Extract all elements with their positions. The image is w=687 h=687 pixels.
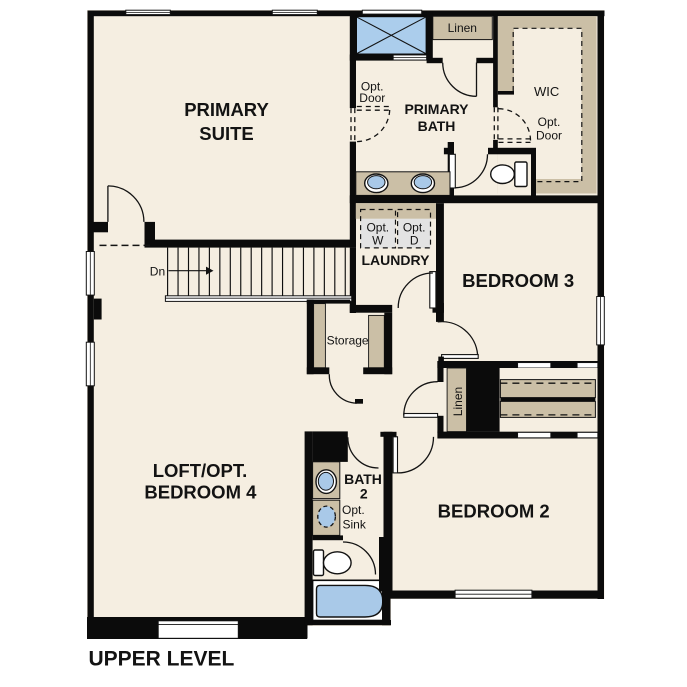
svg-text:Opt.: Opt. (342, 503, 365, 517)
svg-text:Dn: Dn (150, 265, 165, 279)
svg-text:SUITE: SUITE (199, 123, 253, 144)
svg-text:Door: Door (359, 91, 385, 105)
svg-text:WIC: WIC (534, 84, 559, 99)
svg-text:2: 2 (360, 486, 368, 502)
svg-text:LAUNDRY: LAUNDRY (362, 252, 431, 268)
svg-text:W: W (372, 233, 384, 247)
svg-text:Door: Door (536, 129, 562, 143)
svg-text:Storage: Storage (327, 334, 369, 348)
svg-text:Sink: Sink (343, 518, 367, 532)
svg-text:BATH: BATH (418, 118, 456, 134)
svg-text:Opt.: Opt. (366, 220, 389, 234)
svg-text:BEDROOM 3: BEDROOM 3 (462, 270, 574, 291)
svg-text:LOFT/OPT.: LOFT/OPT. (153, 460, 248, 481)
svg-text:Linen: Linen (451, 387, 465, 416)
svg-text:PRIMARY: PRIMARY (404, 101, 469, 117)
svg-text:D: D (410, 233, 419, 247)
svg-text:PRIMARY: PRIMARY (184, 99, 269, 120)
svg-text:Opt.: Opt. (538, 115, 561, 129)
svg-text:BEDROOM 2: BEDROOM 2 (438, 500, 550, 521)
svg-text:BEDROOM 4: BEDROOM 4 (144, 482, 257, 503)
svg-text:Linen: Linen (448, 21, 477, 35)
svg-text:Opt.: Opt. (403, 220, 426, 234)
svg-text:UPPER LEVEL: UPPER LEVEL (89, 648, 235, 671)
